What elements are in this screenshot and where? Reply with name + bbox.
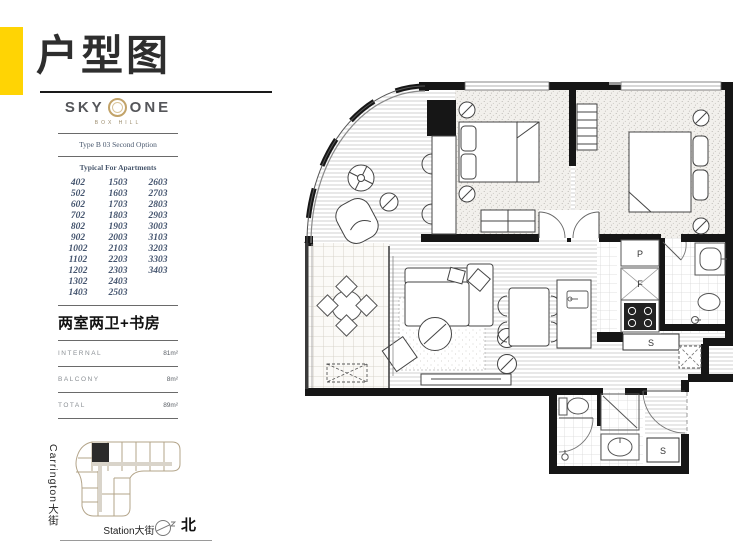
apartment-number: 2803: [138, 200, 178, 210]
area-value: 81m²: [163, 350, 178, 357]
apartment-number: 2103: [98, 244, 138, 254]
skyone-logo: SKY ONE BOX HILL: [58, 98, 178, 126]
site-map: Carrington大街 Station大街 北: [46, 438, 236, 538]
logo-text-sky: SKY: [65, 99, 105, 116]
apartment-number: 1503: [98, 178, 138, 188]
apartment-number: 3403: [138, 266, 178, 276]
apartment-number: 2303: [98, 266, 138, 276]
apartment-number: 2003: [98, 233, 138, 243]
area-label: INTERNAL: [58, 350, 102, 357]
bedroom-doors: [539, 210, 599, 238]
apartment-number: 502: [58, 189, 98, 199]
area-row-balcony: BALCONY 8m²: [58, 373, 178, 385]
logo-subtitle: BOX HILL: [58, 120, 178, 126]
logo-text-one: ONE: [130, 99, 172, 116]
area-row-total: TOTAL 89m²: [58, 399, 178, 411]
apartment-number: 2403: [98, 277, 138, 287]
balcony-balustrade: [305, 243, 309, 389]
area-row-internal: INTERNAL 81m²: [58, 347, 178, 359]
apartment-number: 2703: [138, 189, 178, 199]
apartment-number: 2503: [98, 288, 138, 298]
highlighted-unit: [92, 443, 109, 462]
north-compass-icon: [152, 518, 178, 538]
apartment-number: 2903: [138, 211, 178, 221]
plan-type-label: Type B 03 Second Option: [58, 140, 178, 149]
pantry-label: P: [637, 249, 643, 259]
logo-emblem-icon: [108, 98, 127, 117]
apartment-list-title: Typical For Apartments: [58, 163, 178, 172]
apartment-number: 1803: [98, 211, 138, 221]
storage1-label: S: [648, 338, 654, 348]
layout-name: 两室两卫+书房: [58, 312, 178, 333]
fridge-label: F: [637, 279, 643, 289]
title-underline: [40, 91, 272, 93]
divider: [58, 392, 178, 393]
apartment-number: 1403: [58, 288, 98, 298]
apartment-number: 602: [58, 200, 98, 210]
info-panel: SKY ONE BOX HILL Type B 03 Second Option…: [58, 98, 178, 425]
site-map-footprint: [68, 438, 188, 524]
apartment-number: 1302: [58, 277, 98, 287]
divider: [58, 340, 178, 341]
floor-plan: P F S: [303, 76, 740, 502]
divider: [58, 133, 178, 134]
divider: [58, 418, 178, 419]
apartment-number: 1102: [58, 255, 98, 265]
divider: [58, 366, 178, 367]
apartment-number: [138, 288, 178, 298]
divider: [58, 156, 178, 157]
apartment-number: 1903: [98, 222, 138, 232]
apartment-number: 3103: [138, 233, 178, 243]
apartment-number: 902: [58, 233, 98, 243]
bottom-divider: [60, 540, 212, 541]
apartment-grid: 4021503260350216032703602170328037021803…: [58, 178, 178, 298]
area-value: 8m²: [167, 376, 178, 383]
apartment-number: [138, 277, 178, 287]
entry-mat: [645, 394, 687, 434]
apartment-number: 1002: [58, 244, 98, 254]
north-label: 北: [181, 514, 196, 535]
area-label: TOTAL: [58, 402, 86, 409]
apartment-number: 3203: [138, 244, 178, 254]
apartment-number: 402: [58, 178, 98, 188]
area-value: 89m²: [163, 402, 178, 409]
page-title: 户型图: [36, 22, 171, 83]
divider: [58, 305, 178, 306]
street-label-carrington: Carrington大街: [46, 444, 61, 536]
apartment-number: 2203: [98, 255, 138, 265]
area-label: BALCONY: [58, 376, 100, 383]
apartment-number: 802: [58, 222, 98, 232]
yellow-accent-bar: [0, 27, 23, 95]
apartment-number: 1703: [98, 200, 138, 210]
storage2-label: S: [660, 446, 666, 456]
apartment-number: 702: [58, 211, 98, 221]
apartment-number: 1603: [98, 189, 138, 199]
apartment-number: 1202: [58, 266, 98, 276]
apartment-number: 3303: [138, 255, 178, 265]
apartment-number: 2603: [138, 178, 178, 188]
apartment-number: 3003: [138, 222, 178, 232]
floor-plan-drawing: P F S: [303, 76, 740, 502]
